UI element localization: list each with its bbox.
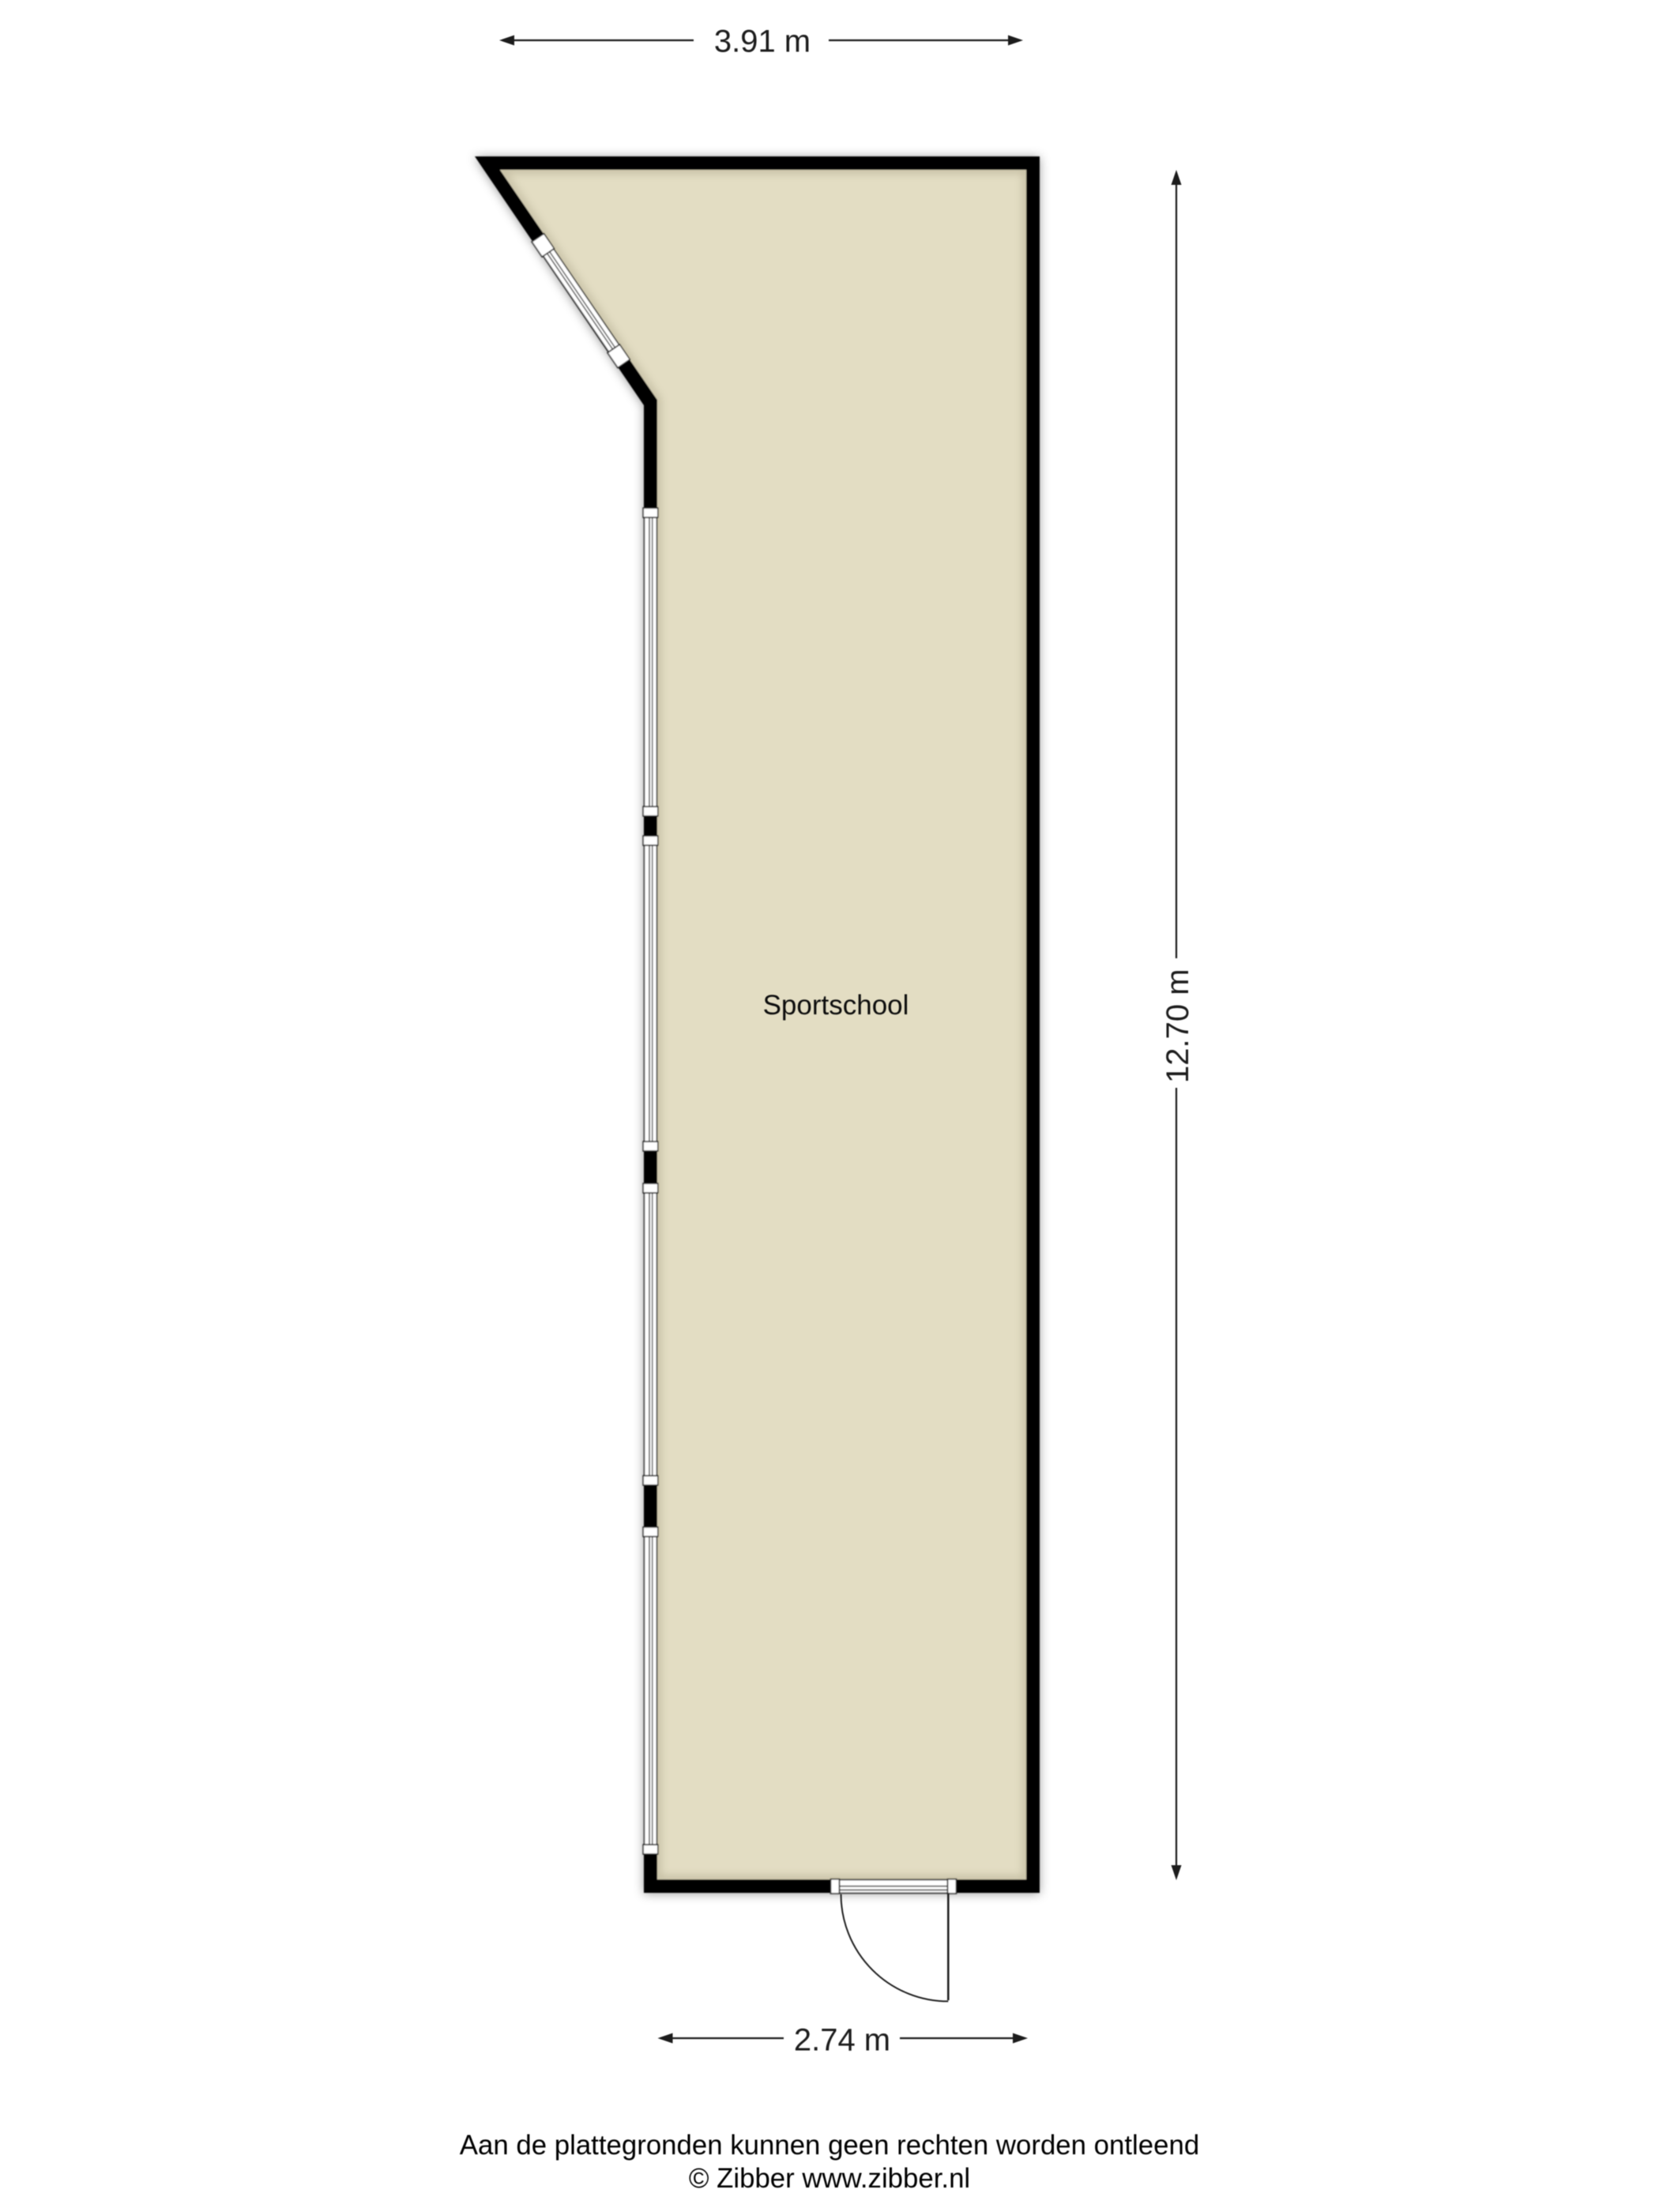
svg-text:3.91 m: 3.91 m (714, 24, 811, 58)
svg-text:Sportschool: Sportschool (763, 990, 909, 1021)
svg-text:2.74 m: 2.74 m (794, 2022, 890, 2057)
svg-text:12.70 m: 12.70 m (1161, 969, 1195, 1083)
svg-text:© Zibber www.zibber.nl: © Zibber www.zibber.nl (689, 2163, 970, 2194)
svg-text:Aan de plattegronden kunnen ge: Aan de plattegronden kunnen geen rechten… (460, 2130, 1199, 2161)
